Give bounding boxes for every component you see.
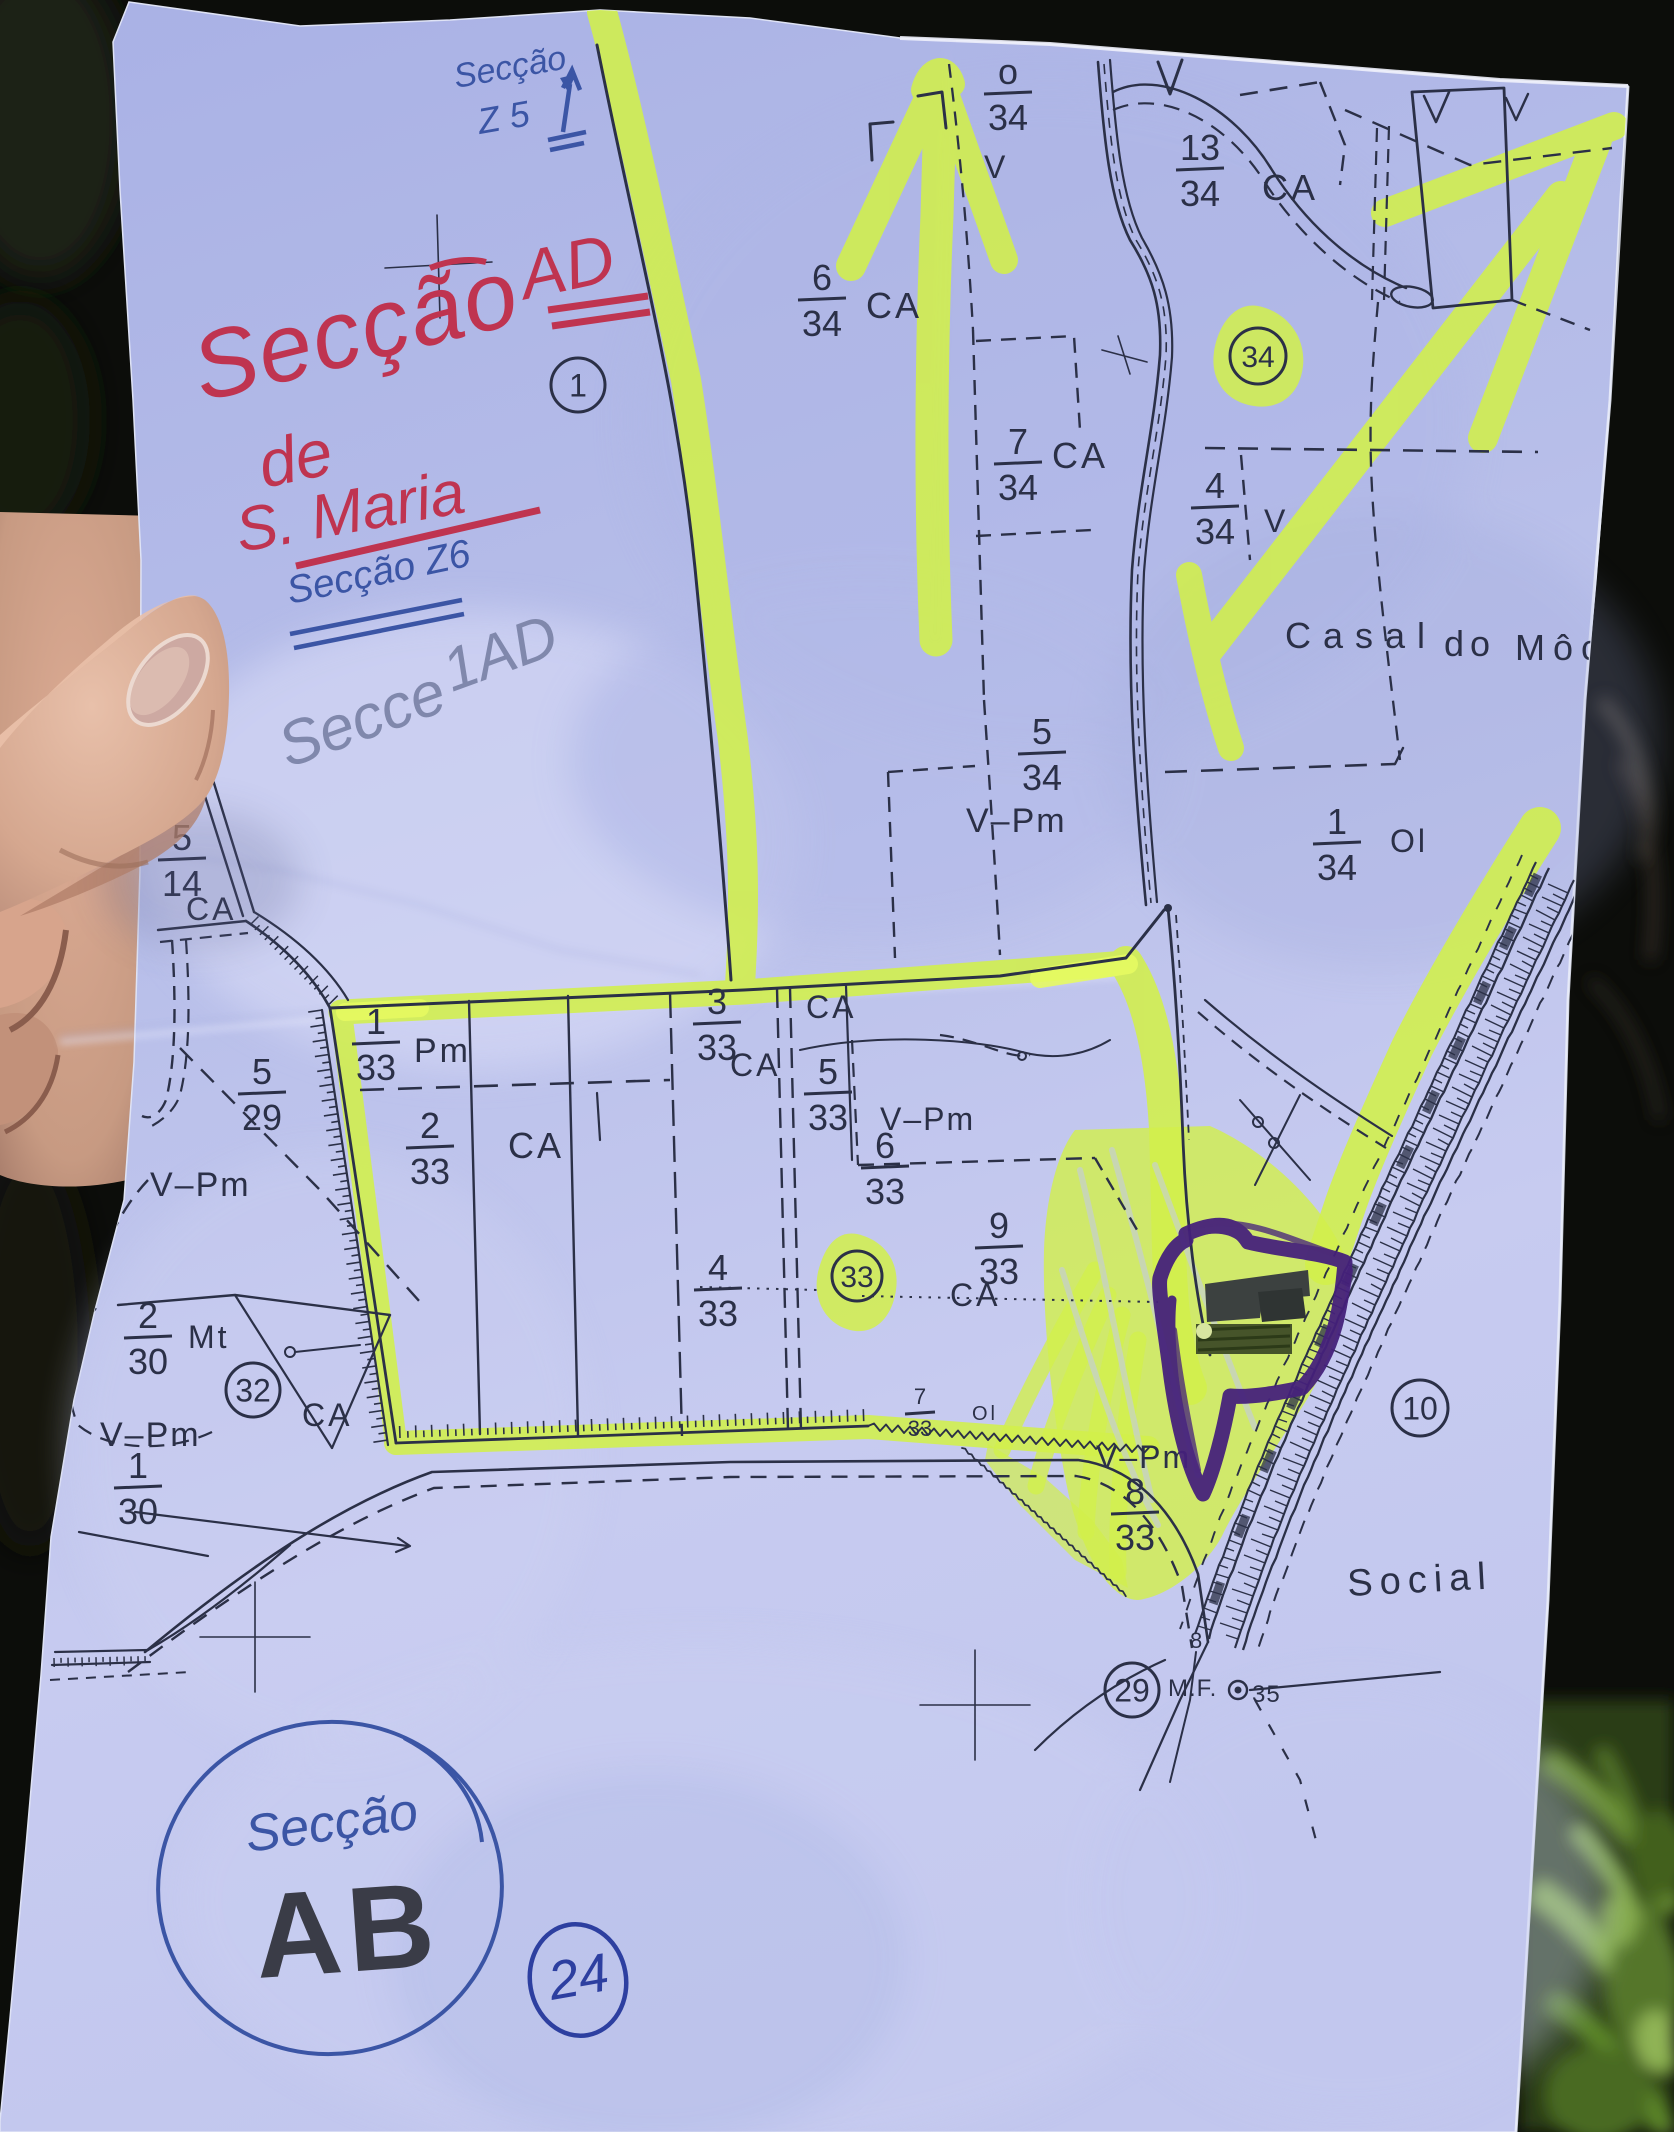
svg-text:33: 33 [1115, 1517, 1155, 1558]
svg-text:9: 9 [989, 1205, 1009, 1246]
svg-text:2: 2 [138, 1295, 158, 1336]
svg-text:Pm: Pm [414, 1032, 471, 1070]
svg-text:34: 34 [1195, 511, 1235, 552]
svg-text:1: 1 [569, 368, 587, 404]
svg-text:V: V [984, 149, 1008, 185]
svg-text:o: o [998, 51, 1018, 92]
svg-text:35: 35 [1252, 1681, 1281, 1708]
svg-text:4: 4 [708, 1247, 728, 1288]
svg-text:33: 33 [698, 1293, 738, 1334]
svg-text:Social: Social [1346, 1555, 1493, 1605]
svg-text:33: 33 [808, 1097, 848, 1138]
svg-text:3: 3 [707, 981, 727, 1022]
svg-text:Casal: Casal [1285, 615, 1437, 656]
svg-text:Ol: Ol [972, 1403, 998, 1425]
svg-text:24: 24 [543, 1942, 614, 2012]
svg-text:AB: AB [250, 1857, 444, 2004]
svg-text:8: 8 [1125, 1471, 1145, 1512]
svg-text:V–Pm: V–Pm [966, 802, 1067, 840]
svg-text:8: 8 [1190, 1628, 1202, 1653]
svg-text:V–Pm: V–Pm [100, 1416, 201, 1454]
svg-text:30: 30 [118, 1491, 158, 1532]
svg-text:5: 5 [1032, 711, 1052, 752]
svg-text:V: V [1264, 503, 1288, 539]
svg-text:7: 7 [1008, 421, 1028, 462]
svg-text:Ol: Ol [1390, 823, 1428, 859]
svg-text:CA: CA [508, 1125, 564, 1166]
svg-text:10: 10 [1402, 1391, 1438, 1427]
svg-text:M.F.: M.F. [1168, 1675, 1217, 1702]
svg-text:13: 13 [1180, 127, 1220, 168]
svg-text:34: 34 [1241, 341, 1274, 374]
svg-text:33: 33 [410, 1151, 450, 1192]
svg-text:do: do [1444, 623, 1496, 664]
svg-text:29: 29 [1114, 1673, 1150, 1709]
svg-text:34: 34 [1022, 757, 1062, 798]
svg-text:CA: CA [302, 1397, 352, 1433]
svg-text:30: 30 [128, 1341, 168, 1382]
svg-text:V–Pm: V–Pm [150, 1166, 251, 1204]
svg-text:34: 34 [1317, 847, 1357, 888]
svg-text:1: 1 [366, 1001, 386, 1042]
svg-text:5: 5 [818, 1051, 838, 1092]
svg-text:5: 5 [252, 1051, 272, 1092]
svg-text:34: 34 [1180, 173, 1220, 214]
svg-text:CA: CA [866, 285, 922, 326]
svg-text:33: 33 [908, 1416, 932, 1441]
svg-text:4: 4 [1205, 465, 1225, 506]
svg-text:CA: CA [1262, 167, 1318, 208]
svg-text:CA: CA [806, 989, 856, 1025]
svg-text:2: 2 [420, 1105, 440, 1146]
svg-text:CA: CA [1052, 435, 1108, 476]
svg-text:32: 32 [235, 1373, 271, 1409]
svg-text:6: 6 [812, 257, 832, 298]
svg-text:CA: CA [950, 1277, 1000, 1313]
svg-text:33: 33 [356, 1047, 396, 1088]
svg-text:V–Pm: V–Pm [880, 1101, 975, 1137]
svg-text:1: 1 [1327, 801, 1347, 842]
svg-text:29: 29 [242, 1097, 282, 1138]
svg-text:7: 7 [914, 1384, 926, 1409]
svg-text:CA: CA [730, 1047, 780, 1083]
svg-text:34: 34 [988, 97, 1028, 138]
svg-text:Mt: Mt [188, 1319, 230, 1355]
svg-text:34: 34 [998, 467, 1038, 508]
svg-text:34: 34 [802, 303, 842, 344]
svg-text:33: 33 [865, 1171, 905, 1212]
svg-text:33: 33 [840, 1261, 873, 1294]
